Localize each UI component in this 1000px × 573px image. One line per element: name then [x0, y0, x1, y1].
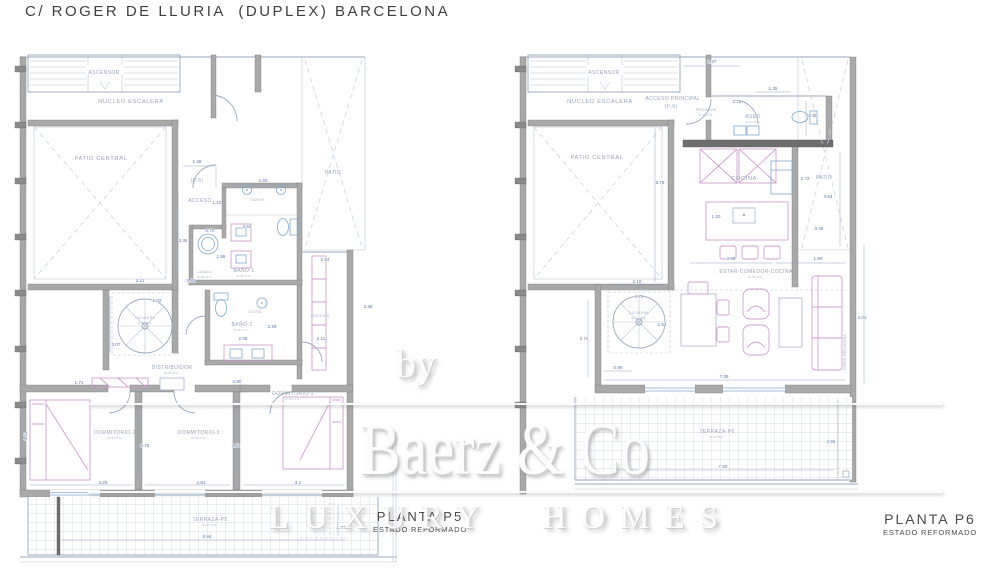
- p5-label-lavado-sup: SUP.UTIL.: [197, 275, 213, 279]
- dim-label: 1.93: [259, 178, 268, 183]
- dim-label: 3.51: [23, 431, 28, 440]
- p6-caption-name: PLANTA P6: [870, 511, 990, 527]
- p5-caption-name: PLANTA P5: [360, 509, 480, 524]
- dim-label: 1.54: [321, 257, 330, 262]
- dim-label: 3.07: [112, 342, 121, 347]
- drawing-title: C/ ROGER DE LLURIA (DUPLEX) BARCELONA: [25, 3, 450, 20]
- dim-label: 1.60: [814, 256, 823, 261]
- p5-label-terraza-sup: SUP.UTIL.: [202, 523, 218, 527]
- p6-label-recibidor: RECIBIDOR: [696, 108, 717, 112]
- dim-label: 0.92: [187, 278, 196, 283]
- dim-label: 1.35: [769, 86, 778, 91]
- p6-caption-state: ESTADO REFORMADO: [870, 528, 990, 537]
- p5-label-nucleo-escalera: NUCLEO ESCALERA: [98, 99, 164, 105]
- dim-label: 1.48: [193, 159, 202, 164]
- dim-label: 7.50: [719, 464, 728, 469]
- dim-label: 2.65: [827, 439, 836, 444]
- dim-label: 1.54: [658, 322, 667, 327]
- dim-label: 7.39: [720, 374, 729, 379]
- p6-plan: ASCENSOR NUCLEO ESCALERA ACCESO PRINCIPA…: [515, 55, 867, 494]
- dim-label: 0.90: [233, 379, 242, 384]
- dim-label: 3.64: [824, 194, 833, 199]
- p5-label-dorm2-sup: SUP.UTIL.: [107, 436, 123, 440]
- p5-caption-state: ESTADO REFORMADO: [360, 525, 480, 534]
- dim-label: 1.71: [75, 380, 84, 385]
- p6-label-terraza-sup: SUP.UTIL.: [709, 435, 725, 439]
- dim-label: 2.06: [239, 336, 248, 341]
- dim-label: 6.78: [656, 180, 665, 185]
- p6-label-aseo-sup: SUP.UTIL.: [745, 120, 761, 124]
- dim-label: 0.90: [614, 365, 623, 370]
- floorplan-canvas: ASCENSOR NUCLEO ESCALERA PATIO CENTRAL P…: [0, 0, 1000, 573]
- dim-label: 2.72: [232, 443, 241, 448]
- dim-label: 3.69: [727, 256, 736, 261]
- drawing-sheet: C/ ROGER DE LLURIA (DUPLEX) BARCELONA: [0, 0, 1000, 573]
- dim-label: 0.90: [809, 113, 818, 118]
- dim-label: 0.70: [206, 228, 215, 233]
- p6-label-recibidor-sup: SUP.UTIL.: [698, 113, 714, 117]
- dim-label: 3.29: [99, 480, 108, 485]
- dim-label: 2.11: [317, 336, 326, 341]
- dim-label: 1.75: [733, 99, 742, 104]
- p5-label-ducha-2: DUCHA: [248, 310, 262, 314]
- p6-label-pared-medianera: PARED MEDIANERA: [843, 334, 847, 370]
- dim-label: 2.76: [141, 443, 150, 448]
- p6-caption: PLANTA P6 ESTADO REFORMADO: [870, 511, 990, 537]
- p5-label-dorm3-sup: SUP.UTIL.: [191, 436, 207, 440]
- dim-label: 3.52: [243, 224, 252, 229]
- p5-label-distribuidor-sup: SUP.UTIL.: [164, 371, 180, 375]
- dim-label: 1.02: [153, 298, 162, 303]
- dim-label: 3.36: [179, 238, 188, 243]
- p6-label-nucleo-escalera: NUCLEO ESCALERA: [567, 99, 633, 105]
- p5-label-escalera: ESCALERA: [135, 316, 155, 320]
- p5-plan: ASCENSOR NUCLEO ESCALERA PATIO CENTRAL P…: [15, 55, 397, 562]
- dim-label: 1.86: [217, 254, 226, 259]
- p5-dimensions: 1.48 1.93 1.10 0.70 3.52 1.86 3.36 1.54 …: [23, 159, 373, 540]
- p5-label-bano2: BAÑO-2: [231, 321, 252, 328]
- p6-label-cocina: COCINA: [731, 176, 757, 182]
- p5-caption: PLANTA P5 ESTADO REFORMADO: [360, 509, 480, 534]
- dim-label: 2.81: [197, 480, 206, 485]
- p6-label-acceso-principal: ACCESO PRINCIPAL: [646, 96, 701, 102]
- p5-label-bano2-sup: SUP.UTIL.: [234, 328, 250, 332]
- dim-label: 2.72: [801, 176, 810, 181]
- p5-label-bano1-sup: SUP.UTIL.: [236, 274, 252, 278]
- dim-label: 3.1: [295, 480, 302, 485]
- dim-label: 1.20: [712, 214, 721, 219]
- p6-label-escalera: ESCALERA: [629, 311, 649, 315]
- dim-label: 2.11: [136, 278, 145, 283]
- p6-label-ascensor: ASCENSOR: [588, 70, 619, 76]
- p5-label-bano1: BAÑO-1: [233, 267, 254, 274]
- dim-label: 8.84: [203, 534, 212, 539]
- p6-label-p6-ref: (P-6): [664, 104, 677, 110]
- p6-label-patio-central: PATIO CENTRAL: [571, 155, 624, 161]
- p5-label-ducha-1: DUCHA: [251, 198, 265, 202]
- dim-label: 2.29: [268, 324, 277, 329]
- dim-label: 2.27: [708, 59, 717, 64]
- p5-label-patio-central: PATIO CENTRAL: [75, 156, 128, 162]
- p5-label-acceso: ACCESO: [188, 198, 212, 204]
- p5-label-escalera-sup: SUP.UTIL.: [137, 321, 153, 325]
- dim-label: 1.77: [337, 525, 346, 530]
- p5-structure: [15, 55, 397, 562]
- p5-label-ascensor: ASCENSOR: [88, 70, 119, 76]
- p6-label-estar-sup: SUP.UTIL.: [748, 275, 764, 279]
- dim-label: 3.36: [364, 304, 373, 309]
- p5-label-p5-ref: (P-5): [190, 178, 203, 184]
- p5-label-patio: PATIO: [325, 170, 341, 176]
- p5-label-dorm1-sup: SUP.UTIL.: [285, 397, 301, 401]
- dim-label: 2.74: [580, 336, 589, 341]
- dim-label: 1.79: [635, 294, 644, 299]
- dim-label: 0.45: [815, 226, 824, 231]
- p5-label-vestidor: VESTIDOR: [311, 314, 330, 318]
- p6-label-escalera-sup: SUP.UTIL.: [631, 316, 647, 320]
- p5-label-lavado: LAVADO: [198, 270, 213, 274]
- p6-label-patio: PATIO: [816, 175, 832, 181]
- dim-label: 2.10: [633, 279, 642, 284]
- dim-label: 1.10: [213, 200, 222, 205]
- dim-label: 4.03: [858, 315, 867, 320]
- p6-structure: [515, 55, 858, 494]
